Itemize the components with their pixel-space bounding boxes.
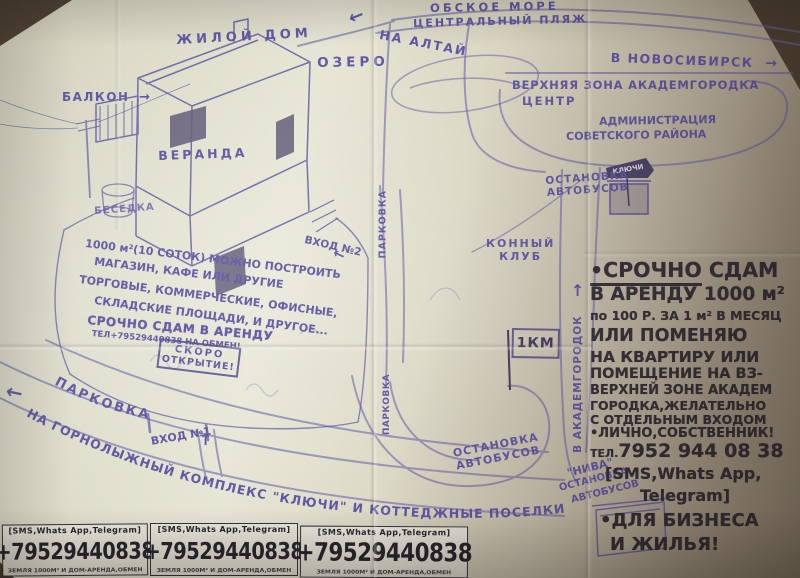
horse-club-label: КОННЫЙ КЛУБ <box>486 238 555 263</box>
house-steps <box>310 200 338 232</box>
center-label: ЦЕНТР <box>522 95 576 108</box>
ad-flat-line: НА КВАРТИРУ ИЛИ <box>590 348 759 366</box>
akademgorodok-arrow-icon: ↑ <box>571 283 584 299</box>
ad-price-line: по 100 Р. ЗА 1 м² В МЕСЯЦ <box>590 308 782 323</box>
balcony-arrow-icon: → <box>139 90 151 105</box>
photo-of-hand-drawn-map: КЛЮЧИ НА ГОРНОЛЫЖНЫЙ КОМПЛЕКС "КЛЮЧИ" И … <box>0 0 800 578</box>
ad-zone-line: ВЕРХНЕЙ ЗОНЕ АКАДЕМ <box>590 383 772 398</box>
ad-gorodok-line: ГОРОДКА,ЖЕЛАТЕЛЬНО <box>590 398 766 413</box>
ad-entrance-line: С ОТДЕЛЬНЫМ ВХОДОМ <box>590 412 766 427</box>
road-parking-2 <box>400 190 404 362</box>
to-akademgorodok-label: В АКАДЕМГОРОДОК <box>572 309 584 459</box>
parking-curved-label: ПАРКОВКА <box>52 374 152 422</box>
balcony-label: БАЛКОН → <box>62 91 152 106</box>
novosibirsk-arrow-icon: → <box>765 55 779 71</box>
administration-label: АДМИНИСТРАЦИЯ <box>599 114 716 129</box>
road-down-from-shore <box>383 24 390 192</box>
parking-vertical-top-label: ПАРКОВКА <box>379 194 390 258</box>
ad-premises-line: ПОМЕЩЕНИЕ НА ВЗ- <box>590 366 763 382</box>
phone-strip-1: [SMS,Whats App,Telegram] +79529440838 ЗЕ… <box>2 523 148 576</box>
phone-strip-3: [SMS,Whats App,Telegram] +79529440838 ЗЕ… <box>300 526 468 578</box>
parking-vertical-bottom-label: ПАРКОВКА <box>382 379 392 435</box>
ad-exchange-line: ИЛИ ПОМЕНЯЮ <box>590 326 747 346</box>
ad-rent-line: В АРЕНДУ 1000 м² <box>590 284 785 305</box>
one-km-sign: 1КМ <box>511 328 560 359</box>
ad-sms-line: [SMS,Whats App, <box>605 464 761 483</box>
ad-phone-line: ТЕЛ.7952 944 08 38 <box>590 440 784 462</box>
entrance-1-arrow-icon: ↑ <box>199 432 212 448</box>
ad-urgent-line: •СРОЧНО СДАМ <box>590 258 778 282</box>
phone-strip-2: [SMS,Whats App,Telegram] +79529440838 ЗЕ… <box>150 523 298 576</box>
soviet-district-label: СОВЕТСКОГО РАЙОНА <box>566 129 706 144</box>
svg-text:ПАРКОВКА: ПАРКОВКА <box>52 374 152 422</box>
lake-label: ОЗЕРО <box>317 55 389 72</box>
ad-owner-line: •ЛИЧНО,СОБСТВЕННИК! <box>590 426 774 441</box>
road-big-inner <box>46 340 548 452</box>
ad-telegram-line: Telegram] <box>640 486 730 505</box>
km-sign-pole <box>508 330 510 390</box>
upper-zone-label: ВЕРХНЯЯ ЗОНА АКАДЕМГОРОДКА <box>512 79 759 92</box>
ad-housing-line: И ЖИЛЬЯ! <box>610 534 719 555</box>
ad-business-line: •ДЛЯ БИЗНЕСА <box>600 510 759 531</box>
